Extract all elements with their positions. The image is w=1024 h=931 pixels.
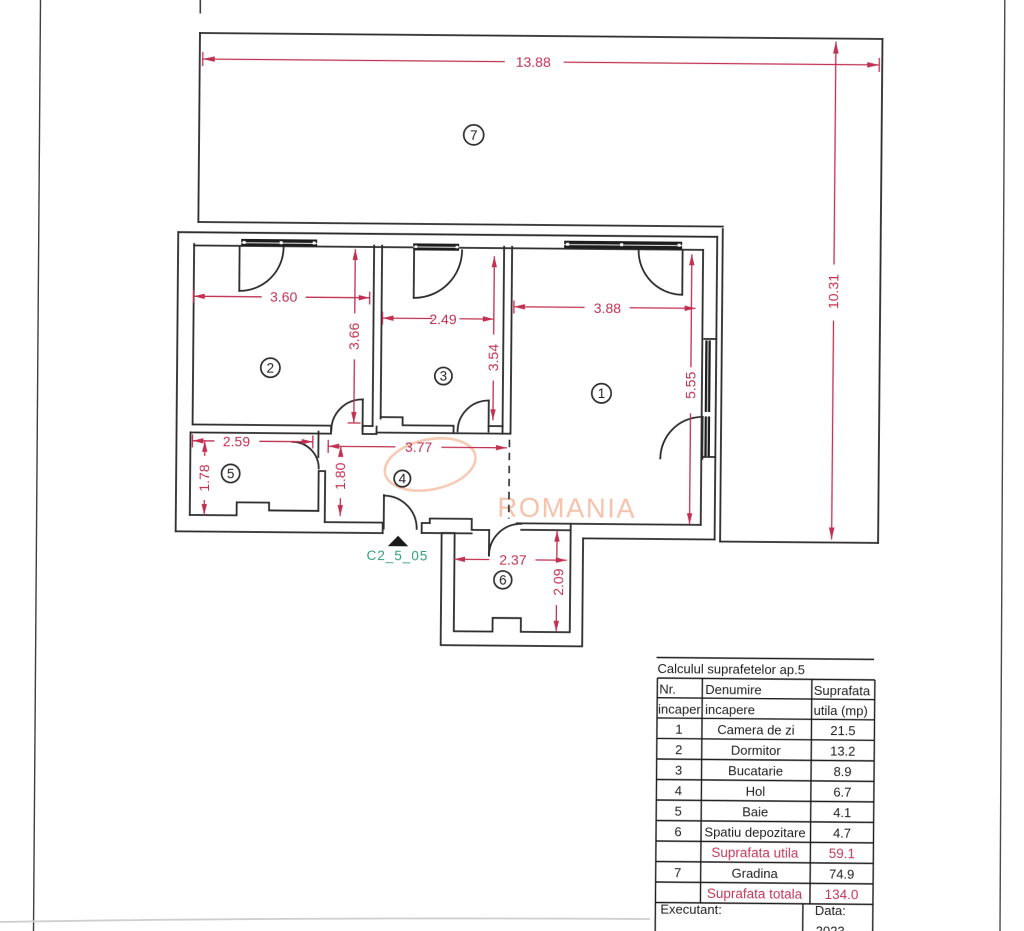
svg-text:Camera de zi: Camera de zi <box>717 722 795 738</box>
svg-text:Data:: Data: <box>815 903 846 918</box>
svg-text:Suprafata: Suprafata <box>814 683 871 698</box>
svg-text:Bucatarie: Bucatarie <box>728 763 783 778</box>
svg-text:13.88: 13.88 <box>516 54 551 70</box>
svg-text:1.80: 1.80 <box>332 462 348 490</box>
svg-text:Nr.: Nr. <box>659 682 676 697</box>
svg-text:134.0: 134.0 <box>825 887 859 902</box>
svg-text:7: 7 <box>470 128 478 143</box>
svg-text:6: 6 <box>499 573 507 588</box>
svg-text:utila (mp): utila (mp) <box>814 703 868 718</box>
svg-text:Hol: Hol <box>746 784 766 799</box>
svg-text:Denumire: Denumire <box>705 682 761 697</box>
svg-text:2.37: 2.37 <box>499 552 527 568</box>
svg-text:2: 2 <box>675 742 682 757</box>
svg-text:59.1: 59.1 <box>829 846 855 861</box>
svg-text:Suprafata utila: Suprafata utila <box>711 845 799 861</box>
svg-text:3.77: 3.77 <box>405 439 433 455</box>
svg-text:Executant:: Executant: <box>660 902 722 918</box>
svg-text:4.7: 4.7 <box>833 826 851 841</box>
svg-text:4: 4 <box>675 783 682 798</box>
svg-text:3.88: 3.88 <box>594 300 622 316</box>
svg-text:incapere: incapere <box>705 702 755 717</box>
svg-text:2: 2 <box>267 360 275 375</box>
svg-text:2023: 2023 <box>816 923 845 931</box>
svg-text:2.59: 2.59 <box>223 433 251 449</box>
svg-text:3.66: 3.66 <box>346 322 362 350</box>
svg-text:74.9: 74.9 <box>829 867 854 882</box>
svg-text:Spatiu depozitare: Spatiu depozitare <box>704 825 805 841</box>
svg-text:13.2: 13.2 <box>830 744 855 759</box>
svg-text:6: 6 <box>674 824 681 839</box>
svg-text:21.5: 21.5 <box>830 723 855 738</box>
svg-text:1: 1 <box>675 722 682 737</box>
svg-text:C2_5_05: C2_5_05 <box>366 548 428 564</box>
svg-text:incaper: incaper <box>658 702 701 717</box>
svg-text:ROMANIA: ROMANIA <box>497 492 636 524</box>
svg-text:5: 5 <box>675 804 682 819</box>
svg-text:2.49: 2.49 <box>429 311 457 327</box>
svg-text:5: 5 <box>227 466 235 481</box>
svg-text:8.9: 8.9 <box>833 764 851 779</box>
svg-text:4: 4 <box>398 471 406 486</box>
svg-text:Calculul suprafetelor ap.5: Calculul suprafetelor ap.5 <box>657 661 805 677</box>
svg-text:Dormitor: Dormitor <box>731 743 782 758</box>
svg-text:10.31: 10.31 <box>825 274 841 309</box>
svg-text:Baie: Baie <box>742 804 768 819</box>
svg-text:4.1: 4.1 <box>833 805 851 820</box>
svg-text:3.60: 3.60 <box>270 289 298 305</box>
svg-text:6.7: 6.7 <box>833 785 851 800</box>
svg-text:3: 3 <box>675 763 682 778</box>
svg-text:1: 1 <box>598 386 606 401</box>
svg-text:1.78: 1.78 <box>196 464 212 492</box>
svg-text:3: 3 <box>440 369 448 384</box>
svg-text:5.55: 5.55 <box>682 371 698 399</box>
svg-text:7: 7 <box>674 865 681 880</box>
svg-text:3.54: 3.54 <box>485 344 501 372</box>
svg-text:Gradina: Gradina <box>731 866 778 881</box>
svg-text:2.09: 2.09 <box>550 568 566 596</box>
svg-text:Suprafata totala: Suprafata totala <box>707 886 803 902</box>
